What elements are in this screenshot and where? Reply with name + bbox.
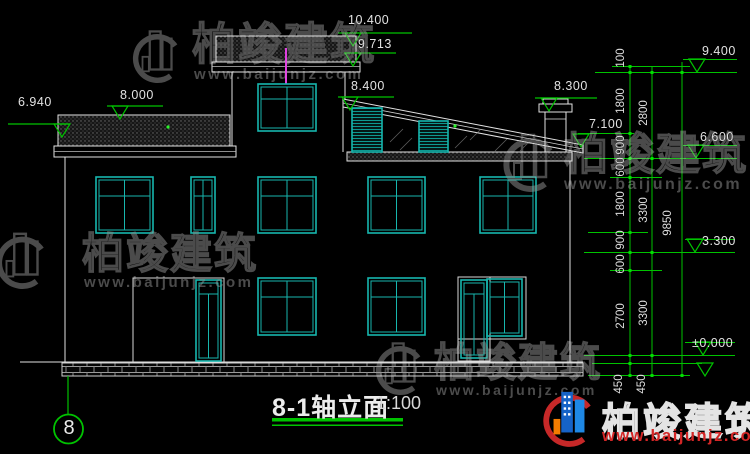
window-2f-4 xyxy=(368,177,425,233)
dim-inner-1800a: 1800 xyxy=(615,79,627,123)
watermark-brand: 柏竣建筑 xyxy=(564,132,748,178)
watermark-top: 柏竣建筑 www.baijunjz.com xyxy=(128,24,388,86)
brand-logo-color: 柏竣建筑 www.baijunjz.com xyxy=(540,384,750,454)
elev-label-8000: 8.000 xyxy=(120,88,154,102)
elev-label-8300: 8.300 xyxy=(554,79,588,93)
watermark-url: www.baijunjz.com xyxy=(564,176,742,194)
dim-mid-3300b: 3300 xyxy=(638,291,650,335)
dim-inner-2700: 2700 xyxy=(615,294,627,338)
cad-elevation-drawing: 6.940 8.000 10.400 9.713 8.400 8.300 7.1… xyxy=(0,0,750,454)
watermark-brand: 柏竣建筑 xyxy=(434,342,602,384)
watermark-url: www.baijunjz.com xyxy=(194,66,363,83)
brand-logo-icon xyxy=(0,228,52,290)
brand-url: www.baijunjz.com xyxy=(602,427,750,446)
tower-window xyxy=(258,84,316,131)
grip-dot xyxy=(453,124,456,127)
left-roof xyxy=(54,115,236,157)
watermark-right: 柏竣建筑 www.baijunjz.com xyxy=(500,128,750,198)
elev-label-3300: 3.300 xyxy=(702,234,736,248)
watermark-brand: 柏竣建筑 xyxy=(192,22,376,68)
elev-label-0000: ±0.000 xyxy=(692,336,733,350)
grip-dot xyxy=(166,125,169,128)
window-1f-2 xyxy=(368,278,425,335)
dimension-chains xyxy=(578,60,737,378)
louver-window-1 xyxy=(352,108,382,152)
dim-total-9850: 9850 xyxy=(662,201,674,245)
brand-logo-icon xyxy=(540,386,598,448)
axis-bubble-label: 8 xyxy=(60,417,78,440)
brand-logo-icon xyxy=(372,338,428,396)
dimension-grips xyxy=(629,65,684,377)
elev-label-6940: 6.940 xyxy=(18,95,52,109)
right-combo-window xyxy=(487,279,522,336)
dim-inner-600b: 600 xyxy=(615,242,627,286)
louver-window-2 xyxy=(419,121,448,152)
watermark-brand: 柏竣建筑 xyxy=(82,232,258,276)
brand-logo-icon xyxy=(500,128,560,194)
watermark-url: www.baijunjz.com xyxy=(84,274,253,291)
brand-logo-icon xyxy=(128,26,186,84)
dim-inner-100: 100 xyxy=(615,36,627,80)
elev-label-9400: 9.400 xyxy=(702,44,736,58)
watermark-left: 柏竣建筑 www.baijunjz.com xyxy=(0,224,270,294)
